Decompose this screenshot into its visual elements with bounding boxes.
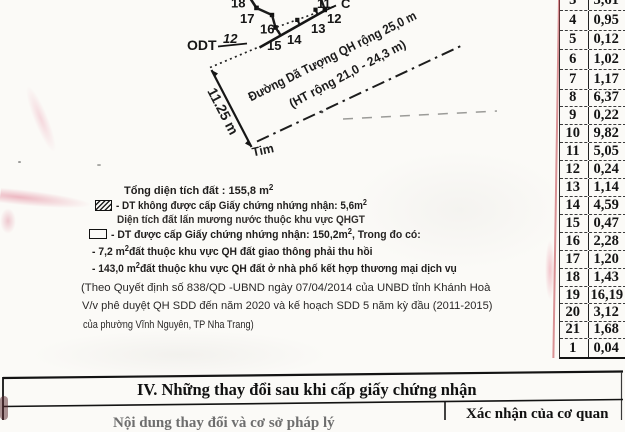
svg-text:11.25 m: 11.25 m bbox=[204, 85, 242, 137]
svg-text:17: 17 bbox=[240, 11, 254, 26]
svg-text:ODT: ODT bbox=[187, 37, 217, 53]
svg-text:14: 14 bbox=[287, 32, 302, 47]
svg-text:C: C bbox=[341, 0, 351, 11]
svg-text:16: 16 bbox=[260, 22, 274, 37]
svg-text:15: 15 bbox=[267, 38, 281, 53]
svg-text:11.: 11. bbox=[317, 0, 334, 11]
svg-text:Tim: Tim bbox=[251, 141, 275, 159]
svg-text:18: 18 bbox=[231, 0, 245, 11]
svg-text:13: 13 bbox=[311, 21, 325, 36]
svg-text:12: 12 bbox=[327, 11, 341, 26]
